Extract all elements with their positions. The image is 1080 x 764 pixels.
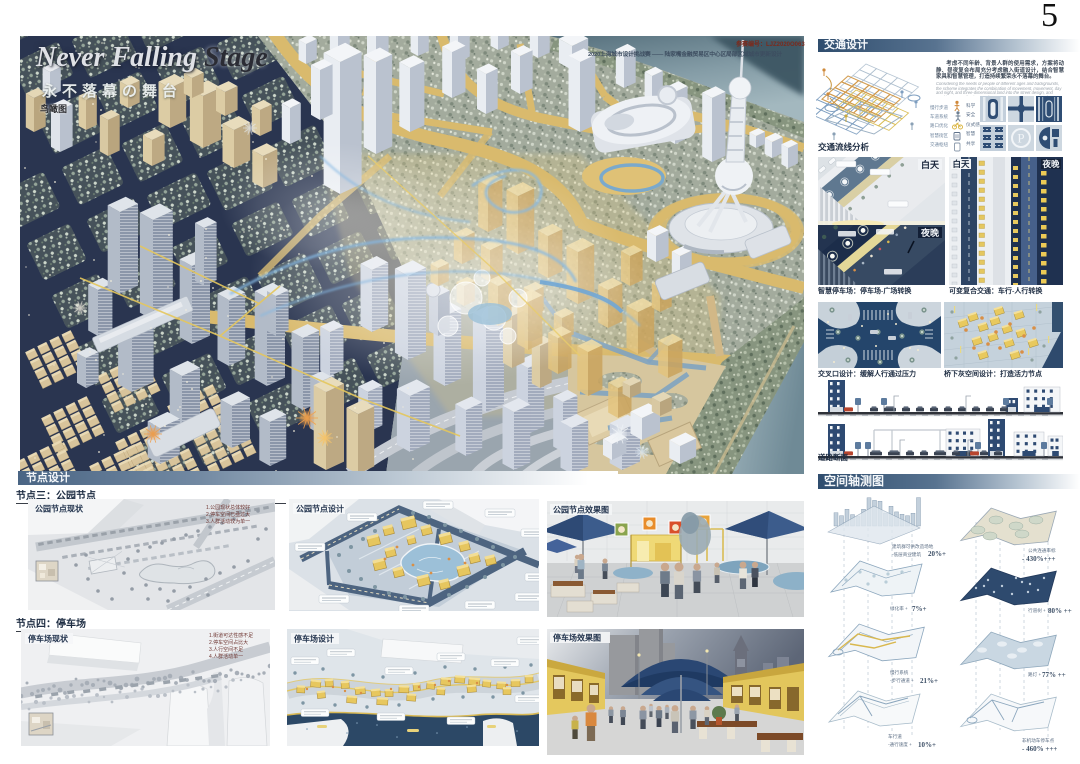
svg-text:公园节点设计: 公园节点设计	[296, 504, 344, 514]
svg-text:- 430%+++: - 430%+++	[1022, 555, 1056, 563]
svg-text:夜晚: 夜晚	[1041, 159, 1060, 169]
svg-text:车行道: 车行道	[888, 733, 902, 740]
svg-text:7%+: 7%+	[912, 605, 927, 613]
svg-text:非机动车停车点: 非机动车停车点	[1022, 737, 1055, 744]
svg-text:停车场设计: 停车场设计	[294, 634, 334, 644]
svg-text:绿化率 +: 绿化率 +	[890, 605, 908, 612]
svg-text:公园节点现状: 公园节点现状	[35, 504, 84, 514]
svg-text:白天: 白天	[952, 159, 970, 169]
svg-text:白天: 白天	[921, 159, 940, 170]
svg-text:2.停车空间占比大: 2.停车空间占比大	[209, 639, 248, 646]
svg-text:4.人群活动单一: 4.人群活动单一	[209, 653, 243, 660]
svg-text:慢行系统: 慢行系统	[890, 669, 909, 676]
svg-text:- 460% +++: - 460% +++	[1022, 745, 1057, 753]
svg-text:1.街道可达性感不足: 1.街道可达性感不足	[209, 632, 253, 639]
svg-text:行道树 +: 行道树 +	[1028, 607, 1046, 614]
svg-text:1.公园现状总体较好: 1.公园现状总体较好	[206, 504, 250, 511]
svg-text:77% ++: 77% ++	[1042, 671, 1066, 679]
svg-text:2.停车空间已亟过大: 2.停车空间已亟过大	[206, 511, 250, 518]
svg-text:停车场现状: 停车场现状	[28, 634, 69, 644]
svg-text:-通行速度 +: -通行速度 +	[888, 741, 912, 748]
svg-text:21%+: 21%+	[920, 677, 938, 685]
svg-text:公共连通率标: 公共连通率标	[1028, 547, 1056, 554]
svg-text:-低层商业建筑: -低层商业建筑	[892, 551, 921, 558]
svg-text:80% ++: 80% ++	[1048, 607, 1072, 615]
svg-text:3.人行空间不足: 3.人行空间不足	[209, 646, 243, 653]
svg-text:公园节点效果图: 公园节点效果图	[553, 505, 609, 515]
svg-text:3.人群活动较为单一: 3.人群活动较为单一	[206, 518, 250, 525]
svg-text:夜晚: 夜晚	[920, 227, 939, 238]
svg-text:建筑群可供改造场地: 建筑群可供改造场地	[892, 543, 934, 550]
svg-text:P: P	[1017, 131, 1024, 146]
svg-text:20%+: 20%+	[928, 550, 946, 558]
svg-text:停车场效果图: 停车场效果图	[553, 633, 601, 643]
svg-text:-步行通道 +: -步行通道 +	[890, 677, 914, 684]
svg-text:路灯 +: 路灯 +	[1028, 671, 1041, 678]
svg-text:10%+: 10%+	[918, 741, 936, 749]
